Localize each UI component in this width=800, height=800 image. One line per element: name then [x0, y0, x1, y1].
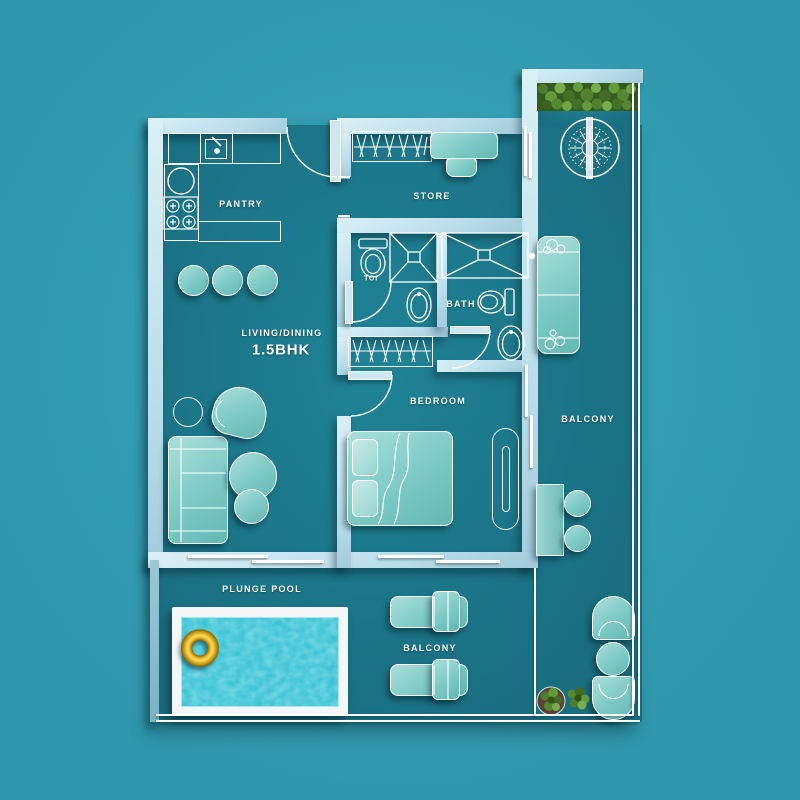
sliding-window-icon — [529, 132, 532, 178]
balcony-railing-outer — [632, 83, 634, 716]
room-label-living-dining: LIVING/DINING — [242, 328, 323, 338]
side-table-icon — [173, 397, 203, 427]
unit-type-label: 1.5BHK — [252, 342, 310, 359]
sliding-window-icon — [436, 560, 500, 563]
wall-bath-bottom — [437, 360, 522, 372]
balcony-railing-bottom-a — [156, 714, 634, 716]
sliding-window-icon — [525, 365, 528, 417]
coffee-table-small-icon — [234, 489, 269, 524]
bath-door-leaf — [450, 326, 490, 334]
balcony-railing-bottom-b — [156, 720, 640, 722]
bar-stool-icon — [178, 265, 209, 296]
wall-top-right — [522, 69, 643, 83]
wall-left — [148, 118, 163, 568]
wall-store-bottom — [337, 218, 522, 233]
sofa-3-seat-icon — [168, 436, 228, 544]
swim-ring-icon — [181, 629, 219, 667]
wall-table-icon — [536, 484, 564, 556]
sliding-window-icon — [524, 126, 527, 176]
bench-inner-line — [502, 446, 510, 512]
room-label-bath: BATH — [446, 299, 476, 309]
sliding-window-icon — [252, 560, 324, 563]
room-label-balcony-right: BALCONY — [561, 414, 615, 424]
breakfast-bar-counter — [198, 221, 281, 242]
sun-lounger-backrest — [432, 659, 460, 700]
decor-round-feature-bar — [586, 117, 593, 179]
balcony-sofa-icon — [537, 236, 580, 354]
balcony-divider-line — [534, 568, 536, 715]
round-table-icon — [596, 642, 630, 676]
stool-icon — [564, 525, 591, 552]
bar-stool-icon — [247, 265, 278, 296]
room-label-bedroom: BEDROOM — [410, 396, 466, 406]
stool-icon — [564, 490, 591, 517]
pillow-icon — [352, 480, 378, 517]
wall-lower-left-parapet — [150, 560, 159, 722]
sliding-window-icon — [378, 555, 444, 558]
balcony-railing-inner — [638, 83, 640, 716]
entrance-door-leaf — [330, 120, 341, 182]
room-label-toi: TOI — [364, 276, 378, 283]
study-desk-icon — [430, 132, 498, 159]
sun-lounger-backrest — [432, 591, 460, 632]
wardrobe-hangers-icon — [352, 131, 432, 162]
bedroom-door-leaf — [348, 371, 392, 380]
room-label-pantry: PANTRY — [219, 199, 263, 209]
pantry-counter-left — [164, 164, 199, 241]
floor-plan-scene: PANTRY STORE TOI BATH LIVING/DINING 1.5B… — [0, 0, 800, 800]
sliding-window-icon — [530, 415, 533, 468]
room-label-store: STORE — [413, 191, 450, 201]
wardrobe-hangers-icon — [348, 336, 433, 367]
desk-chair-icon — [446, 158, 477, 177]
wall-toi-bath-divider — [437, 233, 447, 327]
room-label-plunge-pool: PLUNGE POOL — [222, 584, 302, 594]
sliding-window-icon — [188, 555, 268, 558]
sink-basin — [205, 139, 227, 159]
tub-chair-icon — [592, 596, 635, 640]
pillow-icon — [352, 439, 378, 476]
toi-door-leaf — [345, 281, 353, 324]
wall-top-left — [148, 118, 287, 134]
bar-stool-icon — [212, 265, 243, 296]
room-label-balcony-bottom: BALCONY — [403, 643, 457, 653]
